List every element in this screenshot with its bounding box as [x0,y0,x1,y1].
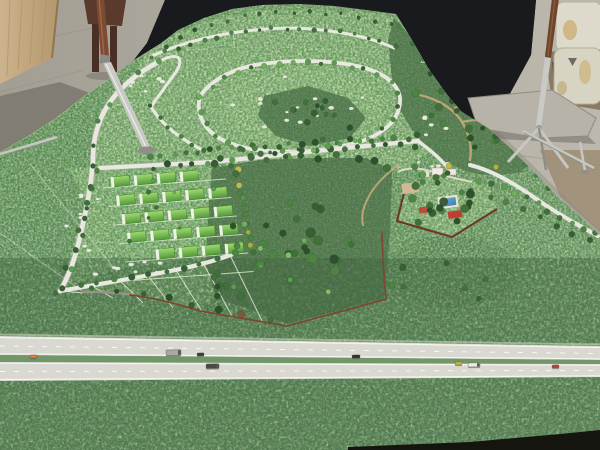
tree [287,200,293,206]
tree [347,136,353,142]
tree [501,184,507,190]
tree [287,141,291,145]
tree [154,205,158,209]
tree [82,216,87,221]
tree [69,266,75,272]
greenhouse-roof [159,172,176,184]
tree [420,179,425,184]
tree [147,216,150,219]
tree [188,43,192,47]
tree [136,70,141,75]
tree [557,215,562,220]
leg-foot [581,170,589,174]
tree [201,148,206,153]
tree [263,145,268,150]
tree [91,164,96,169]
plot-dot [158,262,163,265]
tree [274,10,277,13]
tree [145,271,151,277]
tree [197,94,202,99]
greenhouse-building [191,207,210,219]
tree [332,60,337,65]
tree [412,182,420,190]
greenhouse-roof [193,207,210,219]
tree [342,146,348,152]
greenhouse-roof [158,248,175,260]
tree [79,282,84,287]
tree [159,116,163,120]
greenhouse-building [150,229,169,241]
tree [258,28,261,31]
tree [242,203,246,207]
tree [89,286,94,291]
tree [144,207,149,212]
plot-dot [296,106,300,108]
tree [259,264,263,268]
plot-dot [285,111,288,113]
plot-dot [86,249,91,252]
tree [231,284,236,289]
tree [333,151,340,158]
plot-dot [155,271,159,274]
tree [205,161,210,166]
tree [358,139,362,143]
tree [178,35,182,39]
tree [332,113,337,118]
tree [190,143,194,147]
greenhouse-building [208,187,227,199]
scale-model-photo [0,0,600,450]
tree [94,168,99,173]
tree [237,292,245,300]
tree [406,137,411,142]
tree [248,236,253,241]
tree [297,27,301,31]
tree [340,12,343,15]
tree [173,152,178,157]
tree [59,285,65,291]
tree [166,294,173,301]
vehicle-body [30,355,37,358]
tree [472,145,477,150]
tree [211,274,218,281]
stacked-sacks [554,2,600,104]
tree [350,66,355,71]
tree [347,125,353,131]
tree [371,157,378,164]
greenhouse-roof [170,209,187,221]
tree [303,100,309,106]
tree [215,306,222,313]
tree [319,62,323,66]
greenhouse-building [196,225,215,237]
tree [389,282,395,288]
tree [235,70,241,76]
plot-dot [284,119,289,122]
tree [396,24,400,28]
tree [311,148,316,153]
plot-dot [230,104,235,107]
plot-dot [142,261,146,264]
greenhouse-building [122,212,141,224]
tree [290,107,295,112]
tree [537,200,541,204]
greenhouse-roof [199,225,216,237]
tree [229,163,234,168]
tree [297,148,301,152]
tree [349,241,355,247]
plot-dot [444,127,449,130]
yellow-tree [493,164,498,169]
tree [454,218,460,224]
tree [258,151,264,157]
tree [525,195,530,200]
plot-dot [129,263,134,267]
tree [306,228,316,238]
tree [305,59,311,65]
tree [127,239,131,243]
greenhouse-building [180,170,199,182]
greenhouse-building [179,246,198,258]
tree [73,247,79,253]
greenhouse-building [162,190,181,202]
tree [210,23,214,27]
tree [189,161,194,166]
tree [207,146,213,152]
tree [176,47,181,52]
tree [199,109,205,115]
grey-truck [166,350,181,357]
plot-dot [79,195,83,198]
tree [380,137,385,142]
tree [107,102,112,107]
tree [357,16,361,20]
tree [141,291,146,296]
tree [205,121,210,126]
tree [76,228,81,233]
tree [298,152,304,158]
tree [173,191,176,194]
tree [503,199,509,205]
tree [467,135,473,141]
tree [237,146,243,152]
tree [433,174,440,181]
tree [520,206,526,212]
tree [554,223,560,229]
tree [412,144,418,150]
tree [211,85,215,89]
tree [355,155,363,163]
plot-dot [83,245,87,248]
tree [320,106,325,111]
tree [489,195,494,200]
tree [324,112,329,117]
tree [223,283,230,290]
greenhouse-roof [188,188,205,200]
plot-dot [160,80,165,83]
tree [261,63,266,68]
tree [252,146,258,152]
tree [236,182,242,188]
tree [164,45,168,49]
tree [401,284,406,289]
plot-dot [112,266,116,269]
tree [308,254,318,264]
tree [483,277,488,282]
vehicle-body [197,353,204,356]
tree [151,178,156,183]
tree [544,209,550,215]
tree [324,13,327,16]
tree [88,185,94,191]
tree [184,150,189,155]
tree [408,194,416,202]
tree [214,293,220,299]
tree [511,190,517,196]
plot-dot [96,198,100,200]
tree [166,125,170,129]
tree [361,66,365,70]
tree [301,244,307,250]
tree [311,110,317,116]
tree [569,231,575,237]
tree [230,223,236,229]
plot-dot [417,161,420,163]
tree [412,164,418,170]
tree [91,144,95,148]
plot-dot [328,106,334,110]
tree [367,37,370,40]
tree [476,296,481,301]
tree [466,190,475,199]
tree [460,204,469,213]
tree [215,284,221,290]
tree [454,108,459,113]
vehicle-body [352,355,360,358]
tree [215,256,221,262]
greenhouse-roof [204,244,221,256]
tree [480,126,485,131]
tree [233,170,240,177]
tree [380,127,384,131]
tree [338,142,342,146]
tree [570,221,575,226]
black-car [352,355,360,360]
tree [293,12,296,15]
tree [147,154,153,160]
tree [225,140,231,146]
plot-dot [258,102,262,105]
tree [315,155,322,162]
red-roof-building-small [419,206,428,213]
tree [164,160,171,167]
white-van [468,363,480,368]
tree [84,200,90,206]
greenhouse-roof [182,170,199,182]
tree [330,255,339,264]
tree [435,103,443,111]
plot-dot [423,116,428,119]
tree [237,310,245,318]
stand-foot [138,147,156,154]
tree [272,100,277,105]
tree [304,119,310,125]
tree [476,178,482,184]
tree [241,196,245,200]
tree [163,49,167,53]
tree [390,80,394,84]
tree [140,187,143,190]
tree [429,113,434,118]
tree [211,187,216,192]
tree [246,230,251,235]
tree [459,190,465,196]
plot-dot [93,273,98,276]
tree [293,215,300,222]
tree [440,120,446,126]
tree [465,125,473,133]
tree [248,243,253,248]
white-building [432,168,443,175]
tree [280,230,287,237]
tree [373,20,377,24]
tree [156,59,161,64]
tree [286,28,289,31]
tree [395,104,399,108]
photo-stage [0,0,600,450]
tree [436,204,443,211]
dark-van [206,364,219,370]
plot-dot [349,107,354,110]
greenhouse-roof [176,227,193,239]
tree [129,274,136,281]
tree [181,265,187,271]
tree [242,221,248,227]
tree [178,227,181,230]
plot-dot [129,85,133,87]
greenhouse-roof [136,174,153,186]
tree [302,238,307,243]
tree [249,65,253,69]
greenhouse-building [202,244,221,256]
tree [244,14,247,17]
plot-dot [424,133,428,136]
plot-dot [283,76,287,79]
plot-dot [429,123,434,126]
tree [114,289,119,294]
sack-stain [563,20,577,40]
greenhouse-building [156,248,175,260]
tree [197,262,202,267]
tree [226,20,230,24]
tree [251,250,257,256]
plot-dot [130,81,135,84]
tree [213,134,217,138]
plot-dot [79,213,83,215]
tree [80,233,85,238]
tree [277,61,283,67]
tree [312,139,319,146]
greenhouse-roof [124,212,141,224]
tree [269,26,273,30]
tree [394,44,399,49]
greenhouse-building [111,175,130,187]
tree [366,137,370,141]
tree [445,170,450,175]
plot-dot [361,96,364,98]
vehicle-cab [178,350,181,355]
tree [587,237,593,243]
tree [391,117,396,122]
tree [229,157,235,163]
tree [216,146,221,151]
tree [95,119,100,124]
plot-dot [298,121,303,124]
plot-dot [144,90,148,93]
tree [374,72,379,77]
tree [63,265,69,271]
tree [288,277,293,282]
tree [263,223,269,229]
tree [193,28,197,32]
tree [165,270,170,275]
tree [353,139,357,143]
tree [268,317,273,322]
tree [150,56,154,60]
tree [390,22,393,25]
yellow-car [455,362,462,366]
tree [285,252,291,258]
tree [148,104,152,108]
tree [272,151,277,156]
greenhouse-building [214,205,233,217]
tree [383,142,388,147]
tree [237,191,242,196]
tree [320,137,325,142]
tree [203,38,208,43]
greenhouse-roof [130,231,147,243]
plot-dot [262,125,267,128]
greenhouse-building [185,188,204,200]
greenhouse-roof [119,194,136,206]
tree [412,89,420,97]
greenhouse-building [168,209,187,221]
tree [415,219,422,226]
tree [111,276,117,282]
tree [179,134,184,139]
tree [222,75,227,80]
tree [377,39,381,43]
tree [291,60,296,65]
tree [211,160,219,168]
red-car [552,365,559,369]
sack-stain [579,60,591,84]
tree [94,281,98,285]
tree [462,285,468,291]
greenhouse-building [157,172,176,184]
tree [444,260,450,266]
tree [489,181,495,187]
tree [326,289,331,294]
plot-dot [64,225,68,228]
tree [383,164,391,172]
greenhouse-building [134,174,153,186]
tree [196,151,200,155]
greenhouse-roof [153,229,170,241]
tree [243,211,249,217]
tree [229,31,233,35]
tree [299,141,306,148]
